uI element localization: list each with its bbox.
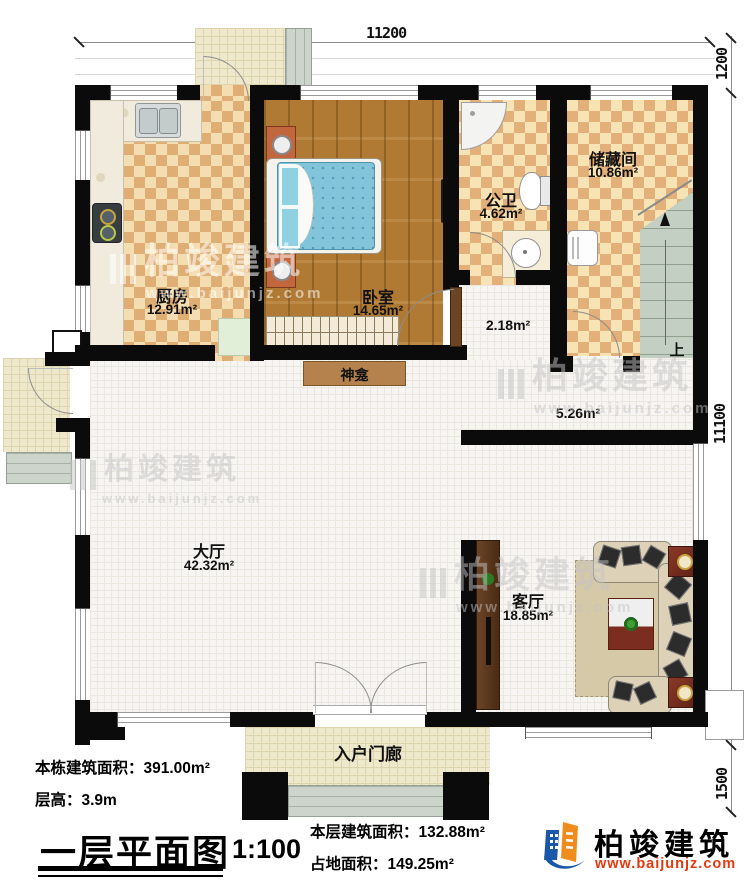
corner-window-box	[705, 690, 744, 740]
extension-line	[75, 58, 715, 59]
entry-porch-label: 入户门廊	[334, 740, 402, 765]
logo-url: www.baijunjz.com	[595, 856, 736, 872]
kitchen-area: 12.91m²	[147, 302, 197, 317]
porch-column-right	[443, 772, 489, 820]
wall	[418, 85, 478, 100]
wall	[75, 180, 90, 285]
kitchen-mat	[218, 318, 254, 356]
window	[75, 130, 90, 182]
wall	[623, 356, 640, 372]
living-area: 18.85m²	[503, 608, 553, 623]
hall-area: 42.32m²	[184, 558, 234, 573]
wall	[550, 356, 573, 372]
bed-pillow	[280, 166, 300, 207]
window	[693, 443, 708, 542]
wall	[425, 712, 708, 727]
wall	[536, 85, 590, 100]
side-porch-steps	[6, 452, 72, 484]
dimension-top-label: 11200	[366, 24, 406, 42]
vestibule-area: 2.18m²	[486, 317, 530, 333]
wall	[230, 712, 315, 727]
wall	[75, 85, 90, 130]
title-underline	[38, 875, 223, 877]
wall	[250, 85, 300, 100]
window	[590, 85, 674, 100]
corridor-area: 5.26m²	[556, 405, 600, 421]
wall	[550, 100, 567, 372]
wall	[443, 100, 459, 290]
wall	[516, 270, 550, 285]
wall	[461, 430, 693, 445]
wall	[177, 85, 200, 100]
bed-pillow	[280, 207, 300, 248]
extension-line	[75, 74, 715, 75]
stair-up-arrow	[660, 212, 670, 226]
shrine: 神龛	[303, 361, 406, 386]
stove	[92, 203, 122, 243]
sofa-pillow	[668, 602, 692, 626]
window	[75, 285, 90, 334]
floor-height-note: 层高：3.9m	[35, 788, 117, 810]
sofa-pillow	[612, 680, 633, 701]
wall	[75, 420, 90, 458]
stairs-up-label: 上	[669, 339, 684, 360]
window	[117, 712, 232, 727]
dimension-right-top-label: 1200	[713, 48, 731, 80]
stair-center-rail	[665, 240, 666, 345]
nightstand-top	[266, 126, 296, 162]
window	[75, 458, 90, 537]
footprint-area-note: 占地面积：149.25m²	[310, 852, 454, 874]
wall	[75, 535, 90, 608]
dimension-line-top	[78, 42, 710, 43]
window	[478, 85, 538, 100]
wall	[250, 100, 264, 361]
storage-area: 10.86m²	[588, 165, 638, 180]
title-underline	[38, 866, 223, 871]
living-tv	[486, 617, 491, 665]
window	[300, 85, 420, 100]
water-heater	[567, 230, 598, 266]
entry-porch-steps	[288, 785, 447, 817]
logo-icon	[538, 818, 588, 874]
total-area-note: 本栋建筑面积：391.00m²	[35, 756, 210, 778]
bedroom-area: 14.65m²	[353, 303, 403, 318]
nightstand-bottom	[266, 252, 296, 288]
wall	[461, 540, 476, 712]
table-plant	[622, 615, 640, 633]
bathroom-area: 4.62m²	[480, 206, 523, 221]
cabinet-plant	[482, 573, 494, 585]
sofa-pillow	[621, 545, 642, 566]
coffee-table	[608, 598, 654, 650]
wall	[75, 345, 215, 361]
wall	[264, 345, 467, 360]
dimension-right-bottom-label: 1500	[713, 768, 731, 800]
wall	[443, 270, 470, 285]
window	[110, 85, 179, 100]
dimension-right-mid-label: 11100	[711, 404, 729, 444]
porch-column-left	[242, 772, 288, 820]
tv-cabinet	[476, 540, 500, 710]
window	[75, 608, 90, 702]
plan-scale: 1:100	[232, 834, 301, 865]
shrine-label: 神龛	[341, 365, 369, 385]
wall	[693, 85, 708, 443]
bed	[266, 158, 382, 254]
floor-area-note: 本层建筑面积：132.88m²	[310, 820, 485, 842]
window-sill	[525, 727, 652, 739]
floor-plan-canvas: 11200 1200 11100 1500 上	[0, 0, 750, 888]
kitchen-sink	[135, 103, 181, 138]
